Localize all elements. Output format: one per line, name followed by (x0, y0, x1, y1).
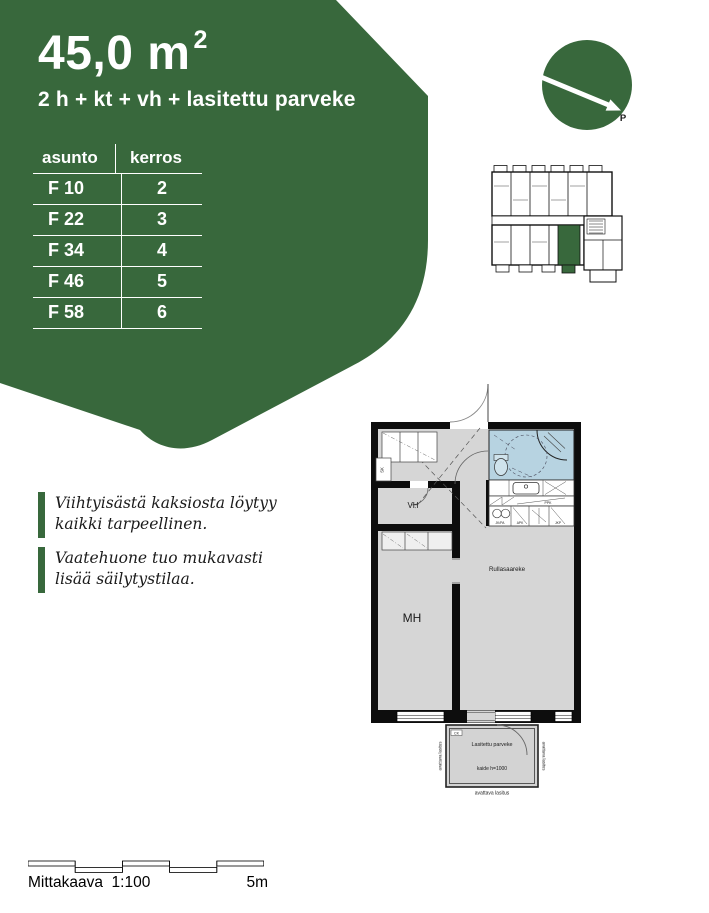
kitchen-island-label: Rullasaareke (489, 566, 526, 573)
appliance-label-right: JKP (555, 521, 562, 525)
bedroom-door-opening (452, 558, 460, 584)
page-title-area: 45,0 m2 (38, 26, 205, 81)
note-livability: Viihtyisästä kaksiosta löytyy kaikki tar… (38, 492, 285, 538)
apartment-id: F 10 (33, 174, 121, 204)
glazing-label-left: avattava lasitus (438, 742, 443, 771)
compass-north-icon: P (535, 33, 639, 133)
col-header-apartment: asunto (33, 144, 115, 173)
table-row: F 10 2 (33, 174, 202, 205)
floor-number: 3 (121, 205, 202, 235)
floor-number: 5 (121, 267, 202, 297)
apartment-floor-plan: CK Lasitettu parveke kaide h=1000 avatta… (360, 373, 590, 795)
area-exponent: 2 (193, 26, 207, 54)
appliance-label-mid: APK (517, 521, 524, 525)
floor-number: 2 (121, 174, 202, 204)
appliance-label-left: JK/PA (496, 521, 506, 525)
area-value: 45,0 m (38, 27, 190, 80)
counter-sink-band (489, 480, 574, 496)
table-row: F 46 5 (33, 267, 202, 298)
scale-max-label: 5m (246, 874, 268, 892)
key-plan-building (492, 166, 622, 283)
brochure-page: 45,0 m2 2 h + kt + vh + lasitettu parvek… (0, 0, 709, 913)
table-row: F 34 4 (33, 236, 202, 267)
vh-door-opening (410, 481, 428, 488)
balcony-label: Lasitettu parveke (471, 742, 512, 748)
scale-label: Mittakaava 1:100 (28, 874, 150, 892)
bathroom (489, 430, 574, 480)
table-row: F 58 6 (33, 298, 202, 329)
walk-in-closet-label: VH (407, 501, 418, 510)
apartment-id: F 22 (33, 205, 121, 235)
entrance-opening (450, 422, 488, 429)
entrance-door-swing (450, 384, 488, 422)
apartment-id: F 34 (33, 236, 121, 266)
apartment-floor-table: asunto kerros F 10 2 F 22 3 F 34 4 F 46 … (33, 144, 202, 329)
laundry-label: PPK (544, 501, 552, 505)
balcony-mark-label: CK (454, 732, 460, 736)
glazing-label-right: avattava lasitus (542, 742, 547, 771)
building-key-plan (486, 162, 628, 292)
scale-bar-labels: Mittakaava 1:100 5m (28, 874, 268, 892)
apartment-id: F 58 (33, 298, 121, 328)
balcony: CK Lasitettu parveke kaide h=1000 avatta… (438, 725, 547, 795)
table-row: F 22 3 (33, 205, 202, 236)
compass-north-label: P (620, 113, 627, 124)
floor-number: 4 (121, 236, 202, 266)
key-plan-highlighted-balcony (562, 265, 575, 273)
floor-number: 6 (121, 298, 202, 328)
cleaning-closet-label: SK (380, 467, 385, 473)
key-plan-highlighted-unit (558, 225, 580, 265)
room-layout-subtitle: 2 h + kt + vh + lasitettu parveke (38, 88, 356, 112)
bedroom-label: MH (403, 611, 422, 625)
appliance-row: JK/PA APK JKP (489, 506, 574, 526)
table-header-row: asunto kerros (33, 144, 202, 174)
col-header-floor: kerros (115, 144, 196, 173)
toilet (495, 459, 508, 476)
railing-label: kaide h=1000 (477, 766, 507, 772)
note-storage: Vaatehuone tuo mukavasti lisää säilytyst… (38, 547, 285, 593)
apartment-id: F 46 (33, 267, 121, 297)
cabinet-band: PPK (489, 496, 574, 506)
glazing-label-bottom: avattava lasitus (475, 791, 510, 796)
